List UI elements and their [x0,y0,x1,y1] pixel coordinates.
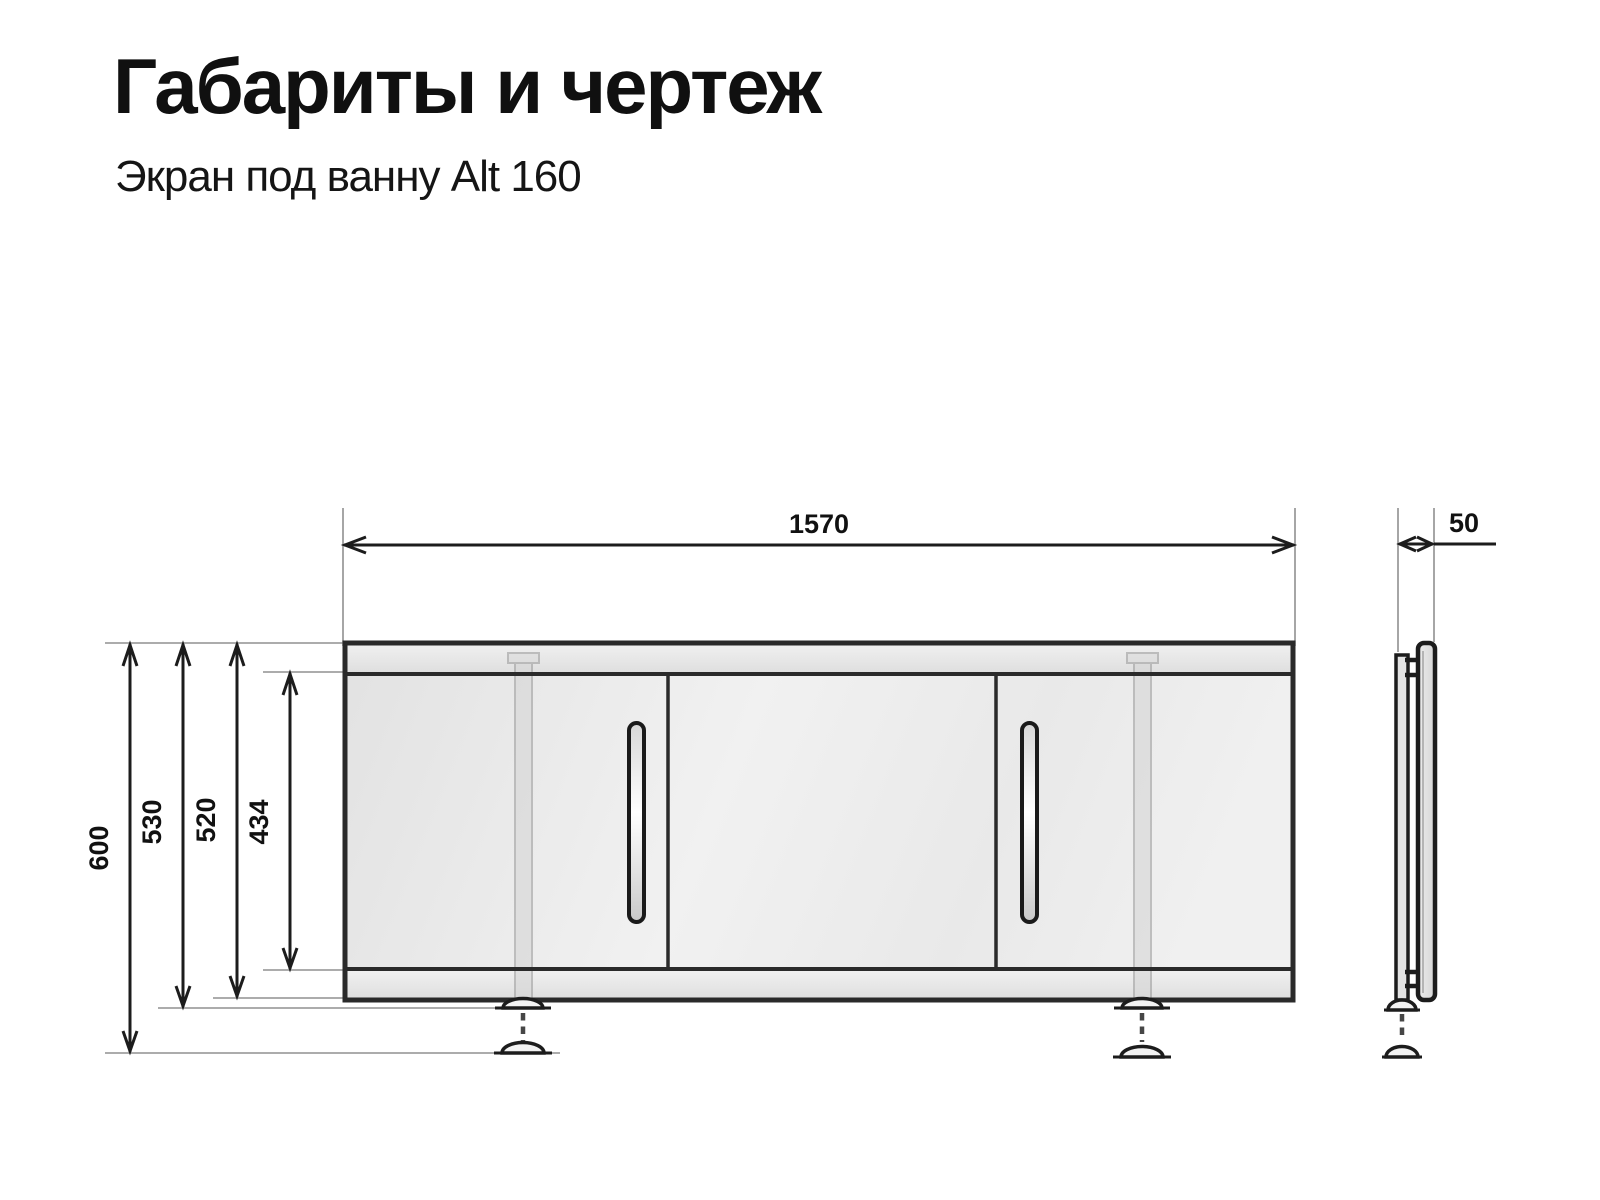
foot-dome-extended [502,1043,544,1054]
dimension-value-height-panel: 434 [244,799,274,844]
leg-shaft [1134,655,1151,1000]
dimension-value-height-body: 520 [191,797,221,842]
foot-dome-retracted [1388,1000,1416,1010]
leg-cap [508,653,539,663]
side-leg-profile [1396,655,1408,1000]
foot-dome-retracted [503,999,543,1009]
dimension-depth: 50 [1399,508,1496,551]
foot-right [1113,999,1171,1058]
side-view [1382,643,1435,1057]
foot-dome-extended [1121,1047,1163,1058]
dimension-overall-width: 1570 [344,509,1294,553]
technical-drawing: 1570 50 600 530 520 [0,0,1600,1200]
dimension-value-width: 1570 [789,509,849,539]
leg-shaft [515,655,532,1000]
foot-dome-extended [1386,1047,1418,1058]
dimension-value-height-overall: 600 [84,825,114,870]
foot-dome-retracted [1122,999,1162,1009]
dimension-height-panel: 434 [244,673,297,969]
handle-right [1022,723,1037,922]
side-panel-profile [1418,643,1435,1000]
dimension-height-body: 520 [191,644,244,997]
dimension-value-depth: 50 [1449,508,1479,538]
foot-left [494,999,552,1054]
dimension-value-height-to-foot: 530 [137,799,167,844]
side-foot [1382,1000,1422,1057]
dimension-height-to-foot: 530 [137,644,190,1007]
dimension-height-overall: 600 [84,644,137,1052]
page: Габариты и чертеж Экран под ванну Alt 16… [0,0,1600,1200]
handle-left [629,723,644,922]
front-view [345,643,1293,1057]
leg-cap [1127,653,1158,663]
